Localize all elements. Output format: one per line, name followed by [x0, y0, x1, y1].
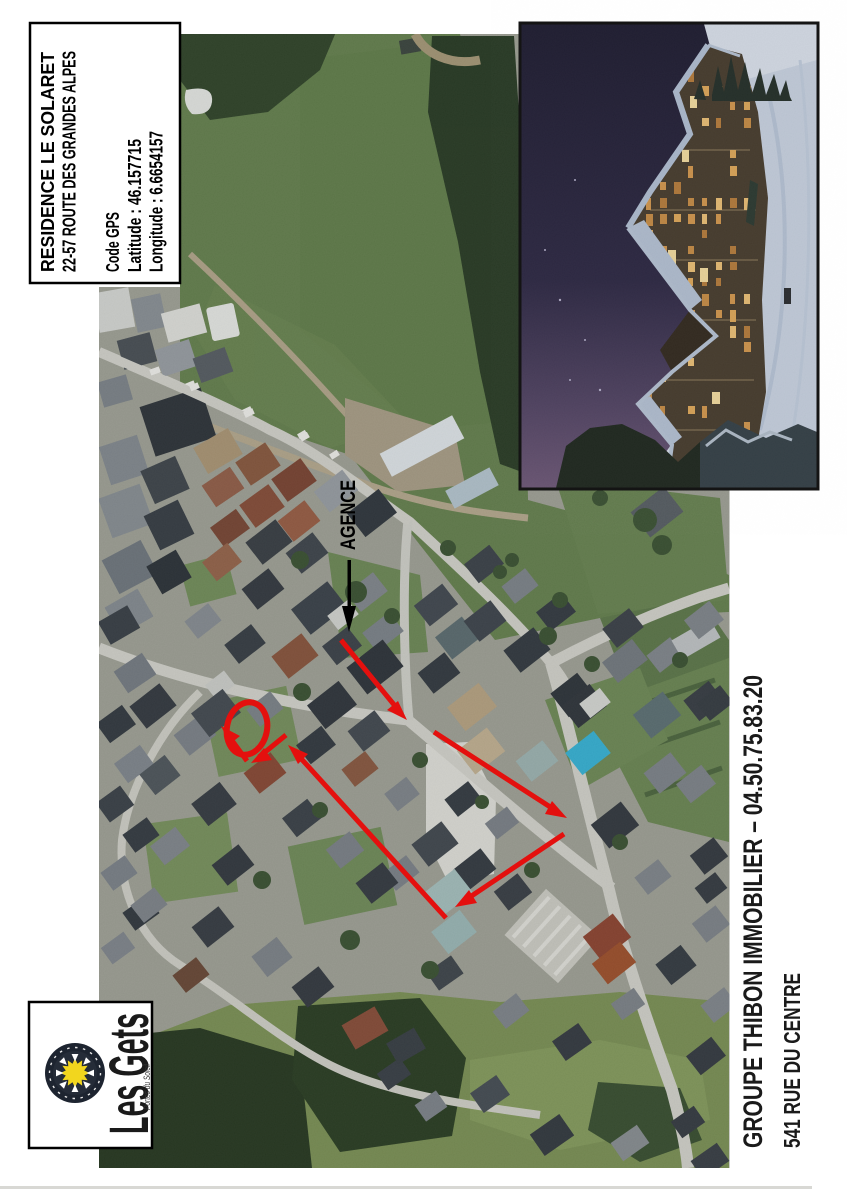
svg-text:541 RUE DU CENTRE: 541 RUE DU CENTRE — [779, 973, 805, 1148]
svg-text:Latitude : 46.157715: Latitude : 46.157715 — [124, 139, 145, 272]
svg-text:22-57 ROUTE DES GRANDES ALPES: 22-57 ROUTE DES GRANDES ALPES — [59, 51, 80, 272]
svg-text:GROUPE THIBON IMMOBILIER – 04.: GROUPE THIBON IMMOBILIER – 04.50.75.83.2… — [738, 675, 768, 1148]
svg-text:Code GPS: Code GPS — [102, 212, 123, 272]
svg-text:AGENCE: AGENCE — [337, 480, 360, 550]
svg-text:Longitude : 6.6654157: Longitude : 6.6654157 — [146, 131, 167, 272]
svg-text:RESIDENCE LE SOLARET: RESIDENCE LE SOLARET — [37, 51, 58, 272]
svg-text:Portes du Soleil: Portes du Soleil — [142, 1063, 152, 1110]
